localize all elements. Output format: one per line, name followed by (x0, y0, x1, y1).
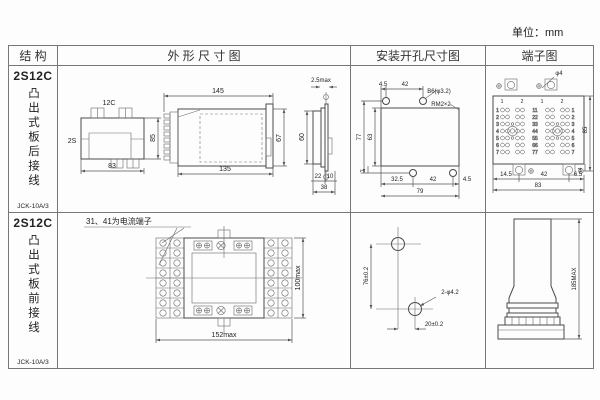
dim-label: 42 (402, 82, 409, 88)
flange-profile-view: 60 2.5max 22 10 38 (299, 78, 337, 195)
dim-label: 20±0.2 (425, 322, 444, 328)
dimension-table: 结 构 外 形 尺 寸 图 安装开孔尺寸图 端子图 2S12C 凸出式板后接线 … (8, 45, 594, 369)
dim-label: 63 (368, 133, 374, 140)
dim-label: 185MAX (572, 267, 578, 290)
svg-text:1: 1 (501, 99, 504, 105)
dim-label: 85 (150, 134, 157, 142)
dim-label: 77 (357, 133, 363, 140)
header-mounting: 安装开孔尺寸图 (351, 46, 486, 66)
svg-text:1: 1 (572, 108, 575, 114)
model-label: 2S12C (13, 69, 52, 83)
header-structure: 结 构 (9, 46, 58, 66)
datasheet-page: 单位：mm 结 构 外 形 尺 寸 图 安装开孔尺寸图 端子图 2S12C 凸出… (0, 0, 600, 400)
wiring-type-label: 凸出式板前接线 (25, 234, 41, 359)
svg-text:44: 44 (532, 129, 538, 135)
dim-label: 83 (108, 163, 116, 170)
outline-drawing-cell-row1: 12C 2S 85 83 (58, 66, 351, 213)
dim-label: 22 (315, 174, 322, 180)
mounting-drawing-cell-row1: 4.5 42 B6(φ3.2) RM2×2 77 63 7 32.5 42 (351, 66, 486, 213)
svg-text:6: 6 (572, 143, 575, 149)
dim-label: 4 (578, 167, 584, 170)
current-terminal-note: 31、41为电流端子 (86, 216, 152, 226)
side-view: 145 67 135 (164, 88, 287, 177)
svg-text:1: 1 (496, 108, 499, 114)
mounting-drawing-cell-row2: 76±0.2 2-φ4.2 20±0.2 (351, 213, 486, 369)
model-label: 2S12C (13, 216, 52, 230)
dim-label: 42 (541, 172, 548, 178)
dim-label: 60 (299, 133, 306, 141)
svg-text:55: 55 (532, 136, 538, 142)
svg-text:4: 4 (572, 129, 575, 135)
pin-hole-label: φ4 (555, 71, 563, 77)
svg-text:3: 3 (572, 122, 575, 128)
header-outline: 外 形 尺 寸 图 (58, 46, 351, 66)
dim-label: 32.5 (391, 177, 403, 183)
corner-spec-label: RM2×2 (431, 102, 451, 108)
hole-spec-label: B6(φ3.2) (427, 89, 451, 95)
outline-drawing-cell-row2: 31、41为电流端子 (58, 213, 351, 369)
dim-label: 100max (295, 265, 302, 290)
dim-label: 4.5 (379, 82, 388, 88)
structure-cell-row1: 2S12C 凸出式板后接线 JCK-10A/3 (9, 66, 58, 213)
svg-text:6: 6 (496, 143, 499, 149)
svg-text:7: 7 (496, 150, 499, 156)
wiring-type-label: 凸出式板后接线 (25, 87, 41, 203)
svg-text:3: 3 (496, 122, 499, 128)
dim-label: 4.5 (463, 177, 472, 183)
structure-cell-row2: 2S12C 凸出式板前接线 JCK-10A/3 (9, 213, 58, 369)
front-view: 12C 2S 85 83 (68, 100, 161, 174)
svg-text:2: 2 (521, 99, 524, 105)
dim-label: 85 (583, 126, 589, 133)
svg-text:1: 1 (541, 99, 544, 105)
svg-text:11: 11 (532, 108, 537, 114)
hole-spec-label: 2-φ4.2 (441, 290, 459, 296)
svg-text:5: 5 (496, 136, 499, 142)
socket-model-label: JCK-10A/3 (17, 359, 48, 366)
dim-label: 76±0.2 (364, 266, 370, 285)
svg-text:33: 33 (532, 122, 538, 128)
dim-label: 10 (327, 174, 334, 180)
dim-label: 6.5 (574, 172, 583, 178)
dim-label: 79 (417, 189, 424, 195)
mounting-holes-rear: 4.5 42 B6(φ3.2) RM2×2 77 63 7 32.5 42 (351, 66, 485, 212)
dim-label: 12C (103, 100, 116, 107)
dim-label: 38 (321, 185, 328, 191)
svg-text:5: 5 (572, 136, 575, 142)
svg-text:2: 2 (572, 115, 575, 121)
dim-label: 67 (276, 134, 283, 142)
terminal-drawing-cell-row1: φ4 1 2 1 2 1 11 1 2 22 2 (486, 66, 594, 213)
terminal-diagram: φ4 1 2 1 2 1 11 1 2 22 2 (486, 66, 593, 212)
mounting-holes-front: 76±0.2 2-φ4.2 20±0.2 (351, 213, 485, 368)
dim-label: 14.5 (500, 172, 512, 178)
front-view-front-wiring: 31、41为电流端子 (58, 213, 350, 368)
dim-label: 42 (430, 177, 437, 183)
side-view-with-socket: 185MAX (486, 213, 593, 368)
dim-label: 83 (535, 183, 542, 189)
svg-text:2: 2 (496, 115, 499, 121)
svg-text:4: 4 (496, 129, 499, 135)
terminal-grid: 1 11 1 2 22 2 3 33 3 (496, 108, 575, 156)
dim-label: 145 (212, 88, 224, 95)
socket-model-label: JCK-10A/3 (17, 203, 48, 210)
outline-drawing-rear-wiring: 12C 2S 85 83 (58, 66, 350, 212)
svg-text:66: 66 (532, 143, 538, 149)
dim-label: 2.5max (311, 78, 331, 84)
dim-label: 135 (219, 166, 231, 173)
svg-text:22: 22 (532, 115, 538, 121)
svg-text:2: 2 (561, 99, 564, 105)
svg-text:7: 7 (572, 150, 575, 156)
side-drawing-cell-row2: 185MAX (486, 213, 594, 369)
terminal-block-outline (493, 79, 584, 175)
dim-label: 152max (212, 332, 237, 339)
dim-label: 2S (68, 138, 77, 145)
unit-label: 单位：mm (512, 24, 563, 40)
svg-text:77: 77 (532, 150, 538, 156)
header-terminal: 端子图 (486, 46, 594, 66)
